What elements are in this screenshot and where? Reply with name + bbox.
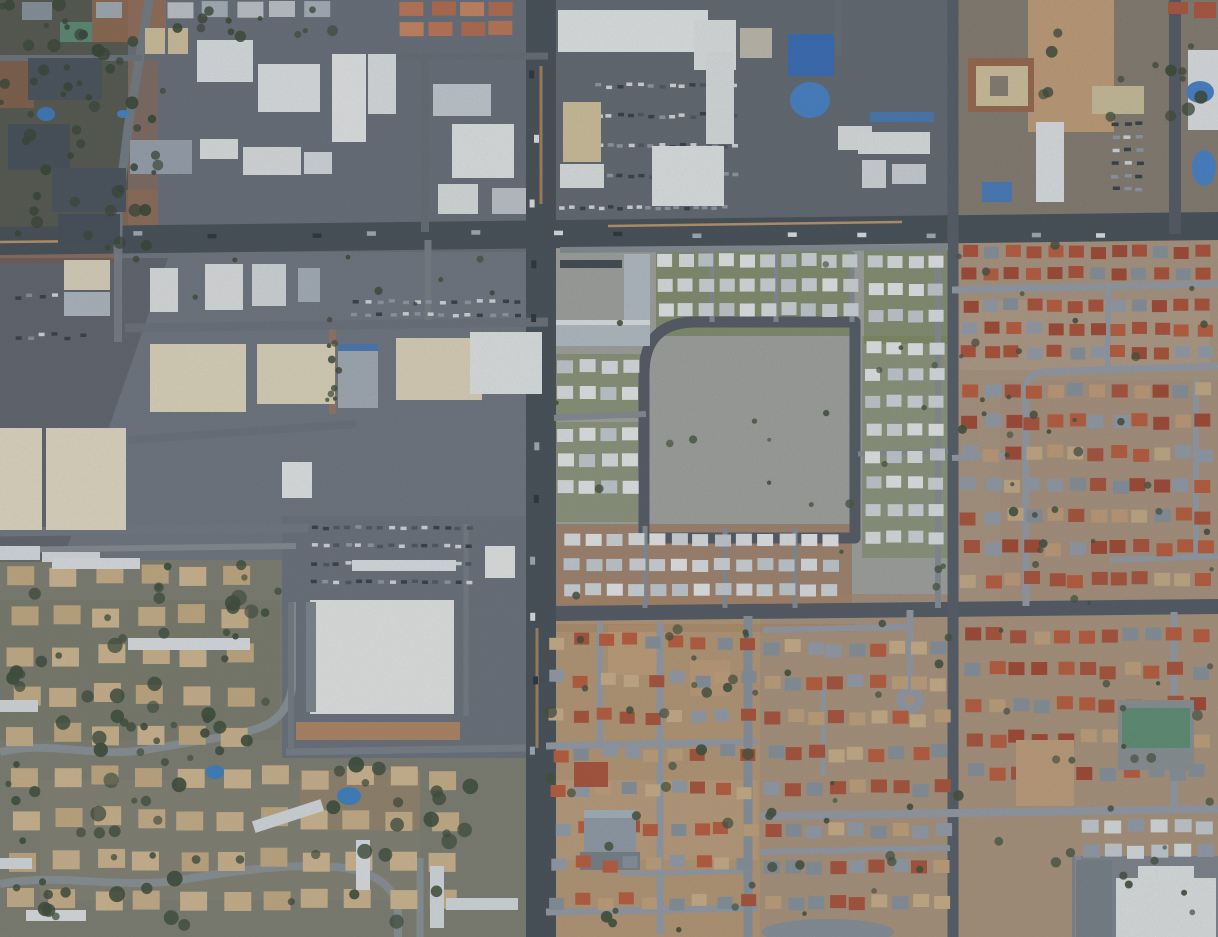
satellite-map <box>0 0 1218 937</box>
satellite-map-viewport[interactable] <box>0 0 1218 937</box>
atmosphere-overlay <box>0 0 1218 937</box>
